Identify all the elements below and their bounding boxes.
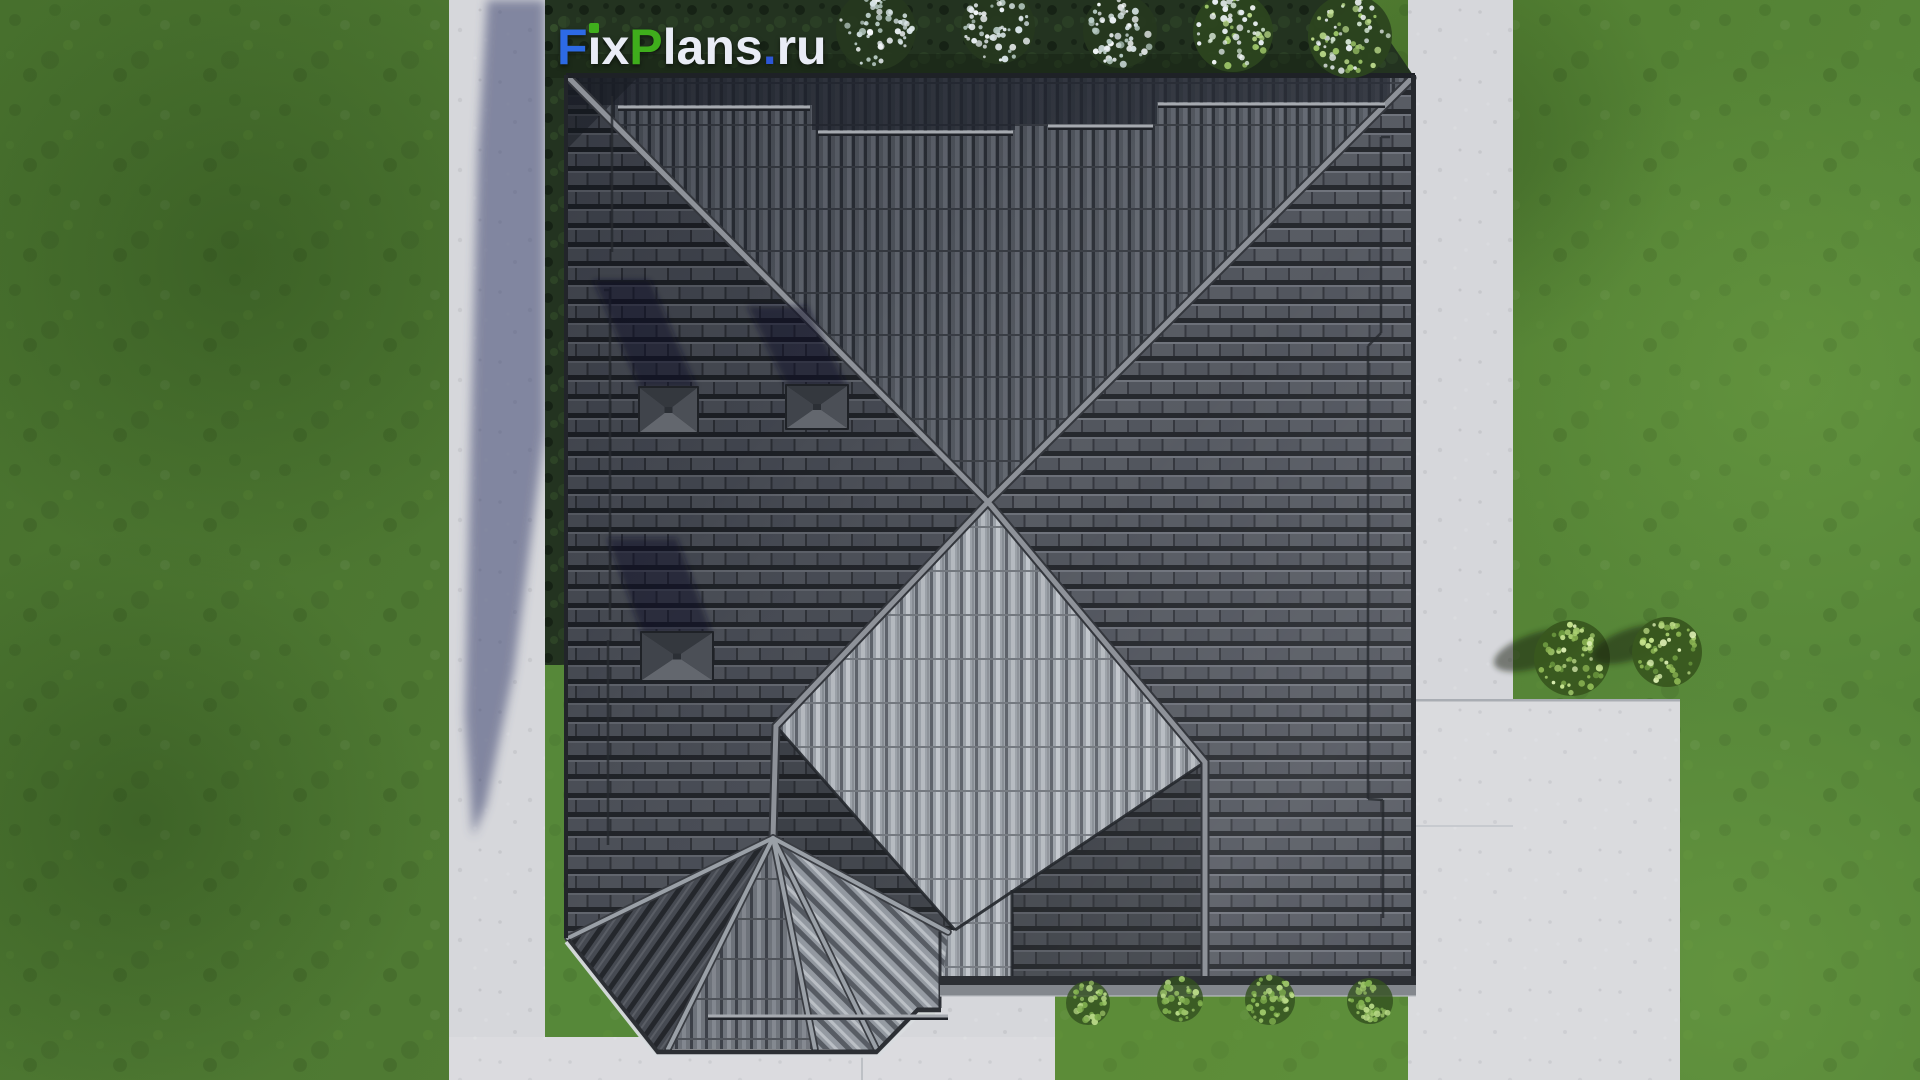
bush-speckle [1089,980,1094,985]
bush-speckle [1103,992,1107,996]
bush-speckle [1342,26,1349,33]
bush-speckle [1012,55,1016,59]
bush-speckle [1357,22,1362,27]
bush-speckle [1638,660,1642,664]
bush-speckle [1557,647,1561,651]
bush-speckle [864,22,867,25]
bush-speckle [1126,10,1129,13]
bush-speckle [1255,1003,1259,1007]
bush-speckle [1334,31,1339,36]
bush-speckle [1676,631,1681,636]
bush-speckle [1692,643,1697,648]
bush-speckle [1654,648,1658,652]
bush-speckle [1539,667,1545,673]
logo-letter: P [629,20,662,74]
bush-speckle [1008,28,1011,31]
bush-speckle [1320,51,1326,57]
site-logo: FıxPlans.ru [557,20,827,76]
bush-small [1157,976,1203,1022]
bush-speckle [1253,21,1258,26]
bush-speckle [1587,641,1592,646]
bush-speckle [1239,55,1245,61]
bush-speckle [1324,64,1328,68]
bush-speckle [1285,1007,1289,1011]
bush-speckle [867,30,873,36]
bush-speckle [870,5,875,10]
bush-speckle [876,15,882,21]
bush-speckle [1329,9,1334,14]
bush-speckle [1675,623,1680,628]
bush-speckle [1672,672,1678,678]
bush-speckle [895,28,901,34]
logo-letter-dot [589,23,599,33]
bush-speckle [1313,45,1319,51]
bush-speckle [1361,15,1366,20]
bush-speckle [973,10,978,15]
bush-speckle [1334,26,1337,29]
bush-speckle [1554,665,1561,672]
bush-speckle [978,25,982,29]
bush-speckle [1094,1014,1101,1021]
bush-speckle [1688,662,1692,666]
bush-speckle [1567,657,1572,662]
bush-speckle [1245,61,1249,65]
bush-speckle [1330,37,1335,42]
bush-speckle [1125,39,1129,43]
bush-speckle [1364,982,1368,986]
bush-speckle [989,35,994,40]
bush-speckle [1220,0,1227,7]
bush-speckle [1369,5,1374,10]
bush-speckle [1104,45,1111,52]
bush-speckle [1000,26,1003,29]
bush-speckle [1290,993,1295,998]
bush-speckle [1252,44,1258,50]
bush-speckle [1552,633,1557,638]
bush-speckle [1347,64,1353,70]
bush-speckle [1325,19,1328,22]
chimney-cap [638,386,699,434]
bush-speckle [1095,23,1098,26]
bush-speckle [1317,16,1321,20]
bush-speckle [1197,32,1200,35]
bush-speckle [1687,628,1690,631]
bush-speckle [1178,996,1181,999]
bush-speckle [1228,13,1233,18]
bush-speckle [1253,1015,1256,1018]
bush-speckle [1223,20,1229,26]
bush-speckle [1019,17,1024,22]
bush-speckle [1358,982,1361,985]
bush-speckle [1678,648,1682,652]
logo-letter: x [601,20,629,74]
bush-speckle [1247,30,1250,33]
bush-speckle [894,19,899,24]
bush-speckle [1192,989,1199,996]
bush-speckle [1581,653,1584,656]
bush-speckle [1317,42,1321,46]
bush-speckle [1073,989,1079,995]
bush-speckle [1112,58,1116,62]
bush-speckle [1024,21,1029,26]
bush-speckle [1107,39,1112,44]
bush-speckle [878,4,882,8]
bush-speckle [1260,997,1267,1004]
bush-speckle [903,13,908,18]
bush-speckle [1363,1007,1369,1013]
bush-speckle [860,62,863,65]
bush-speckle [903,44,906,47]
bush-speckle [1015,26,1022,33]
bush-speckle [1237,48,1242,53]
bush-speckle [1549,665,1552,668]
bush-speckle [1120,61,1127,68]
bush-speckle [1088,996,1095,1003]
bush-speckle [1330,65,1334,69]
bush-speckle [1198,1000,1203,1005]
bush-speckle [1545,676,1548,679]
bush-speckle [1181,1010,1187,1016]
bush-speckle [978,12,982,16]
bush-speckle [1338,67,1344,73]
bush-speckle [1344,59,1349,64]
bush-speckle [872,62,876,66]
bush-speckle [1098,12,1102,16]
logo-letter: lans [663,20,763,74]
bush-speckle [1237,40,1241,44]
bush-speckle [1654,675,1659,680]
bush-speckle [1320,32,1327,39]
bush-speckle [1252,37,1257,42]
bush-speckle [1567,683,1570,686]
bush-speckle [1659,658,1663,662]
bush-speckle [1545,647,1551,653]
chimney-cap [640,631,714,682]
bush-speckle [1580,628,1584,632]
bush-speckle [1174,991,1179,996]
bush-speckle [1192,995,1196,999]
bush-speckle [981,11,986,16]
bush-speckle [1369,1004,1374,1009]
bush-speckle [1009,3,1015,9]
bush-speckle [1132,16,1139,23]
hedge-texture [545,0,566,665]
bush-speckle [1691,647,1696,652]
bush-speckle [879,59,884,64]
bush-speckle [1018,3,1025,10]
bush-speckle [1109,17,1116,24]
bush-speckle [1099,1002,1103,1006]
bush-speckle [1258,40,1263,45]
bush-speckle [1355,45,1359,49]
bush-speckle [876,9,882,15]
bush-speckle [1365,997,1371,1003]
bush-speckle [1073,996,1076,999]
bush-speckle [1590,633,1595,638]
bush-speckle [1353,66,1357,70]
bush-speckle [984,39,988,43]
bush-speckle [1125,33,1128,36]
bush-speckle [1356,987,1359,990]
bush-speckle [1560,684,1564,688]
bush-speckle [1251,998,1256,1003]
bush-speckle [1643,628,1649,634]
bush-speckle [839,18,842,21]
bush-speckle [963,26,967,30]
logo-letter: ı [588,20,602,74]
bush-speckle [1122,8,1125,11]
bush-speckle [1572,666,1578,672]
bush-speckle [1364,38,1369,43]
bush-speckle [1197,41,1201,45]
bush-speckle [1543,642,1548,647]
bush-speckle [969,14,974,19]
bush-speckle [1374,47,1381,54]
bush-speckle [1668,664,1674,670]
bush-speckle [1210,13,1216,19]
bush-speckle [844,23,850,29]
bush-speckle [1196,22,1201,27]
bush-speckle [1275,1014,1279,1018]
bush-speckle [1674,678,1681,685]
bush-speckle [1117,41,1124,48]
bush-speckle [1345,39,1351,45]
scene-svg [0,0,1920,1080]
bush-speckle [1373,15,1376,18]
bush-speckle [1132,8,1139,15]
bush-speckle [1561,647,1566,652]
bush-speckle [903,25,907,29]
bush-speckle [866,57,870,61]
bush-speckle [1099,989,1103,993]
bush-speckle [1114,33,1121,40]
bush-speckle [1587,683,1594,690]
bush-speckle [1134,25,1139,30]
bush-speckle [1359,6,1363,10]
bush-speckle [854,42,857,45]
bush-speckle [972,20,976,24]
bush-speckle [1164,984,1171,991]
bush-speckle [983,55,986,58]
bush-speckle [966,37,970,41]
bush-speckle [1596,664,1603,671]
bush-speckle [886,9,893,16]
bush-speckle [1653,669,1659,675]
bush-speckle [1565,629,1571,635]
bush-speckle [1640,665,1644,669]
bush-speckle [1093,28,1100,35]
bush-speckle [1552,681,1556,685]
bush-speckle [1259,36,1264,41]
bush-speckle [1025,15,1028,18]
render-scene: FıxPlans.ru [0,0,1920,1080]
bush-speckle [1101,996,1107,1002]
bush-speckle [1181,979,1184,982]
bush-speckle [1230,26,1234,30]
walkway-seam [1413,825,1513,827]
logo-letter: F [557,20,588,74]
bush-speckle [885,15,891,21]
bush-speckle [1356,1011,1359,1014]
bush-speckle [1385,1010,1391,1016]
fascia-right [1411,75,1416,996]
bush-speckle [1311,37,1314,40]
bush-speckle [875,22,880,27]
bush-speckle [1689,631,1696,638]
bush-speckle [1231,3,1237,9]
bush-speckle [866,13,871,18]
bush-speckle [1360,985,1367,992]
bush-speckle [1259,977,1263,981]
bush-speckle [1266,974,1272,980]
bush-speckle [1222,29,1228,35]
bush-speckle [983,45,987,49]
bush-speckle [1269,1018,1276,1025]
bush-speckle [1093,48,1099,54]
bush-speckle [1130,46,1136,52]
bush-speckle [1560,635,1565,640]
bush-speckle [1582,646,1587,651]
bush-speckle [1277,997,1282,1002]
bush-speckle [1370,63,1375,68]
bush-speckle [1363,991,1367,995]
bush-speckle [1247,13,1252,18]
bush-speckle [1101,19,1105,23]
bush-speckle [1269,1006,1274,1011]
bush-speckle [1095,991,1098,994]
bush-speckle [1100,1011,1106,1017]
bush-speckle [1226,36,1230,40]
bush-speckle [909,26,915,32]
bush-speckle [1337,22,1341,26]
bush-speckle [1652,623,1655,626]
bush-speckle [999,8,1004,13]
bush-speckle [1097,3,1101,7]
bush-speckle [1168,1010,1172,1014]
patio-seam [1408,699,1680,702]
bush-speckle [859,28,866,35]
bush-speckle [1365,19,1371,25]
bush-speckle [1192,1009,1195,1012]
bush-speckle [1339,32,1342,35]
bush-speckle [1687,671,1690,674]
bush-speckle [1583,665,1590,672]
bush-speckle [1185,1016,1188,1019]
bush-speckle [1239,10,1245,16]
bush-small [1347,978,1393,1024]
bush-speckle [1572,659,1577,664]
bush-speckle [1183,998,1190,1005]
bush-speckle [1587,675,1590,678]
bush-speckle [1144,31,1151,38]
bush-speckle [1259,1018,1264,1023]
bush-speckle [1103,59,1106,62]
bush-speckle [1333,48,1340,55]
bush-speckle [969,24,976,31]
bush-speckle [1350,998,1354,1002]
bush-speckle [1266,988,1272,994]
bush-speckle [1253,994,1257,998]
bush-speckle [856,47,861,52]
bush-speckle [1119,54,1123,58]
bush-speckle [997,1,1002,6]
bush-speckle [1082,1016,1089,1023]
bush-speckle [1205,5,1209,9]
bush-speckle [1179,1017,1183,1021]
bush-speckle [1242,17,1247,22]
bush-speckle [1023,38,1030,45]
bush-speckle [1352,6,1359,13]
bush-speckle [1342,3,1346,7]
bush-speckle [1593,672,1600,679]
bush-speckle [1093,10,1097,14]
bush-speckle [1640,639,1646,645]
bush-speckle [1325,40,1328,43]
bush-speckle [1667,638,1671,642]
bush-speckle [1351,41,1356,46]
bush-speckle [1139,53,1142,56]
bush-speckle [1008,49,1012,53]
bush-speckle [860,21,864,25]
bush-speckle [1666,633,1670,637]
bush-speckle [1219,49,1225,55]
bush-speckle [848,31,851,34]
bush-speckle [996,33,1001,38]
bush-speckle [1279,989,1286,996]
bush-speckle [1128,40,1134,46]
bush-speckle [887,38,893,44]
logo-letter: ru [777,20,827,74]
bush-speckle [971,38,977,44]
bush-speckle [1086,985,1093,992]
bush-speckle [1649,638,1654,643]
bush-speckle [1374,1010,1381,1017]
roof [564,73,1416,1056]
bush-speckle [1323,45,1326,48]
bush-speckle [1079,986,1084,991]
fascia-left [564,75,568,938]
bush-speckle [1260,47,1267,54]
bush-speckle [1261,28,1265,32]
bush-speckle [1233,34,1240,41]
bush-speckle [990,5,993,8]
bush-speckle [1664,661,1668,665]
bush-speckle [1146,43,1153,50]
bush-speckle [1260,1009,1266,1015]
bush-speckle [1223,40,1228,45]
bush-speckle [1129,36,1134,41]
bush-speckle [1224,62,1231,69]
bush-speckle [1346,45,1352,51]
bush-speckle [1107,58,1113,64]
bush-speckle [903,36,906,39]
bush-speckle [1672,655,1677,660]
bush-speckle [1109,33,1113,37]
bush-speckle [1358,60,1362,64]
bush-speckle [1162,998,1168,1004]
bush-speckle [1252,31,1256,35]
bush-speckle [974,3,978,7]
bush-speckle [1178,1002,1182,1006]
bush-speckle [1364,28,1369,33]
bush-speckle [967,5,974,12]
bush-speckle [1250,5,1255,10]
bush-speckle [1361,46,1365,50]
bush-speckle [878,28,883,33]
bush-speckle [1364,1013,1367,1016]
bush-speckle [1283,981,1289,987]
bush-speckle [1212,60,1217,65]
